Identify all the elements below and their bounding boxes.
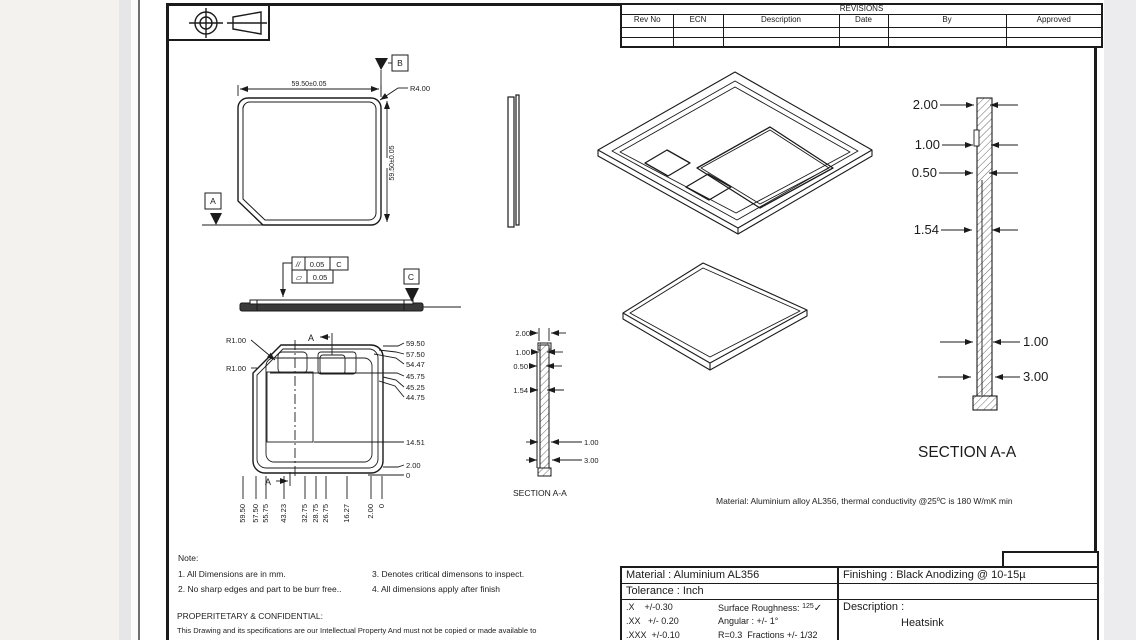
notes-heading: Note: bbox=[178, 553, 198, 563]
tolerance-xx-row: .XX +/- 0.20 Angular : +/- 1° bbox=[622, 614, 837, 628]
dim-label: 0 bbox=[406, 471, 410, 480]
note-line: 3. Denotes critical dimensons to inspect… bbox=[372, 569, 524, 579]
dim-label: 3.00 bbox=[1023, 369, 1048, 384]
dim-label: 59.50±0.05 bbox=[292, 81, 327, 88]
dim-label: 26.75 bbox=[321, 504, 330, 523]
material-row: Material : Aluminium AL356 bbox=[622, 568, 837, 584]
drawing-linework: 59.50±0.05 59.50±0.05 R4.00 B A // 0.05 bbox=[0, 0, 1136, 640]
dim-label: 0.50 bbox=[912, 165, 937, 180]
finishing-row: Finishing : Black Anodizing @ 10-15µ bbox=[839, 568, 1097, 584]
proprietary-text: This Drawing and its specifications are … bbox=[177, 626, 536, 635]
dim-label: 43.23 bbox=[279, 504, 288, 523]
thin-side-view bbox=[508, 95, 519, 227]
section-title: SECTION A-A bbox=[513, 488, 567, 498]
tolerance-xxx-row: .XXX +/-0.10 R=0.3 Fractions +/- 1/32 bbox=[622, 628, 837, 640]
dim-label: 28.75 bbox=[311, 504, 320, 523]
large-section-view: 2.00 1.00 0.50 1.54 1.00 3.00 SECTION A-… bbox=[912, 97, 1049, 461]
dim-label: 0.05 bbox=[310, 260, 325, 269]
small-section-view: 2.00 1.00 0.50 1.54 1.00 3.00 SECTION A-… bbox=[513, 328, 599, 498]
dim-label: 57.50 bbox=[251, 504, 260, 523]
detail-view: A A R1.00 R1.00 59.50 57.50 54.47 45.75 … bbox=[226, 333, 425, 523]
tolerance-x-row: .X +/-0.30 Surface Roughness: 125✓ bbox=[622, 600, 837, 614]
dim-label: 3.00 bbox=[584, 456, 599, 465]
title-block: Material : Aluminium AL356 Tolerance : I… bbox=[620, 566, 1099, 640]
description-label-row: Description : bbox=[839, 600, 1097, 616]
dim-label: 0.50 bbox=[513, 362, 528, 371]
dim-label: 2.00 bbox=[515, 329, 530, 338]
tolerance-xxx: .XXX +/-0.10 bbox=[626, 628, 718, 640]
dim-label: 1.00 bbox=[915, 137, 940, 152]
dim-label: 0.05 bbox=[313, 273, 328, 282]
dim-label: 0 bbox=[377, 504, 386, 508]
surface-roughness: Surface Roughness: 125✓ bbox=[718, 600, 822, 614]
material-note: Material: Aluminium alloy AL356, thermal… bbox=[716, 496, 1013, 506]
dim-label: 44.75 bbox=[406, 393, 425, 402]
flatness-symbol: ▱ bbox=[296, 273, 303, 282]
dim-label: 2.00 bbox=[366, 504, 375, 519]
dim-label: 32.75 bbox=[300, 504, 309, 523]
iso-top-view bbox=[598, 72, 872, 234]
dim-label: 59.50 bbox=[406, 339, 425, 348]
fractions-tolerance: R=0.3 Fractions +/- 1/32 bbox=[718, 628, 818, 640]
datum-label-b: B bbox=[397, 58, 403, 68]
dim-label: R1.00 bbox=[226, 336, 246, 345]
dim-label: 59.50 bbox=[238, 504, 247, 523]
tolerance-row: Tolerance : Inch bbox=[622, 584, 837, 600]
title-block-left: Material : Aluminium AL356 Tolerance : I… bbox=[622, 568, 839, 640]
note-line: 2. No sharp edges and part to be burr fr… bbox=[178, 584, 342, 594]
dim-label: 57.50 bbox=[406, 350, 425, 359]
proprietary-heading: PROPERITETARY & CONFIDENTIAL: bbox=[177, 611, 323, 621]
side-profile-view: // 0.05 C ▱ 0.05 C bbox=[240, 257, 461, 311]
dim-label: 1.54 bbox=[513, 386, 528, 395]
dim-label: 1.00 bbox=[1023, 334, 1048, 349]
dim-label: 54.47 bbox=[406, 360, 425, 369]
dim-label: 1.00 bbox=[584, 438, 599, 447]
dim-label: 1.54 bbox=[914, 222, 939, 237]
part-no-row: Part No :RFQ# 454 bbox=[839, 584, 1097, 600]
front-view: 59.50±0.05 59.50±0.05 R4.00 B A bbox=[202, 55, 430, 225]
surface-roughness-value: 125 bbox=[802, 603, 814, 610]
dim-label: 2.00 bbox=[406, 461, 421, 470]
section-arrow-label: A bbox=[308, 333, 314, 343]
note-line: 4. All dimensions apply after finish bbox=[372, 584, 500, 594]
dim-label: 45.75 bbox=[406, 372, 425, 381]
dim-label: 2.00 bbox=[913, 97, 938, 112]
dim-label: 16.27 bbox=[342, 504, 351, 523]
datum-label-a: A bbox=[210, 196, 216, 206]
angular-tolerance: Angular : +/- 1° bbox=[718, 614, 778, 628]
description-value: Heatsink bbox=[839, 616, 1097, 632]
iso-bottom-view bbox=[623, 263, 807, 370]
drawing-viewer[interactable]: REVISIONS Rev No ECN Description Date By… bbox=[0, 0, 1136, 640]
dim-label: 55.75 bbox=[261, 504, 270, 523]
parallelism-symbol: // bbox=[295, 260, 301, 269]
title-block-right: Finishing : Black Anodizing @ 10-15µ Par… bbox=[839, 568, 1097, 640]
dim-label: 1.00 bbox=[515, 348, 530, 357]
dim-label: 59.50±0.05 bbox=[389, 145, 396, 180]
section-arrow-label: A bbox=[265, 477, 271, 487]
datum-ref: C bbox=[336, 260, 342, 269]
surface-finish-icon: ✓ bbox=[814, 603, 822, 614]
note-line: 1. All Dimensions are in mm. bbox=[178, 569, 286, 579]
dim-label: R1.00 bbox=[226, 364, 246, 373]
section-title: SECTION A-A bbox=[918, 444, 1017, 461]
dim-label: R4.00 bbox=[410, 84, 430, 93]
dim-label: 45.25 bbox=[406, 383, 425, 392]
tolerance-x: .X +/-0.30 bbox=[626, 600, 718, 614]
tolerance-xx: .XX +/- 0.20 bbox=[626, 614, 718, 628]
datum-label-c: C bbox=[408, 272, 414, 282]
dim-label: 14.51 bbox=[406, 438, 425, 447]
